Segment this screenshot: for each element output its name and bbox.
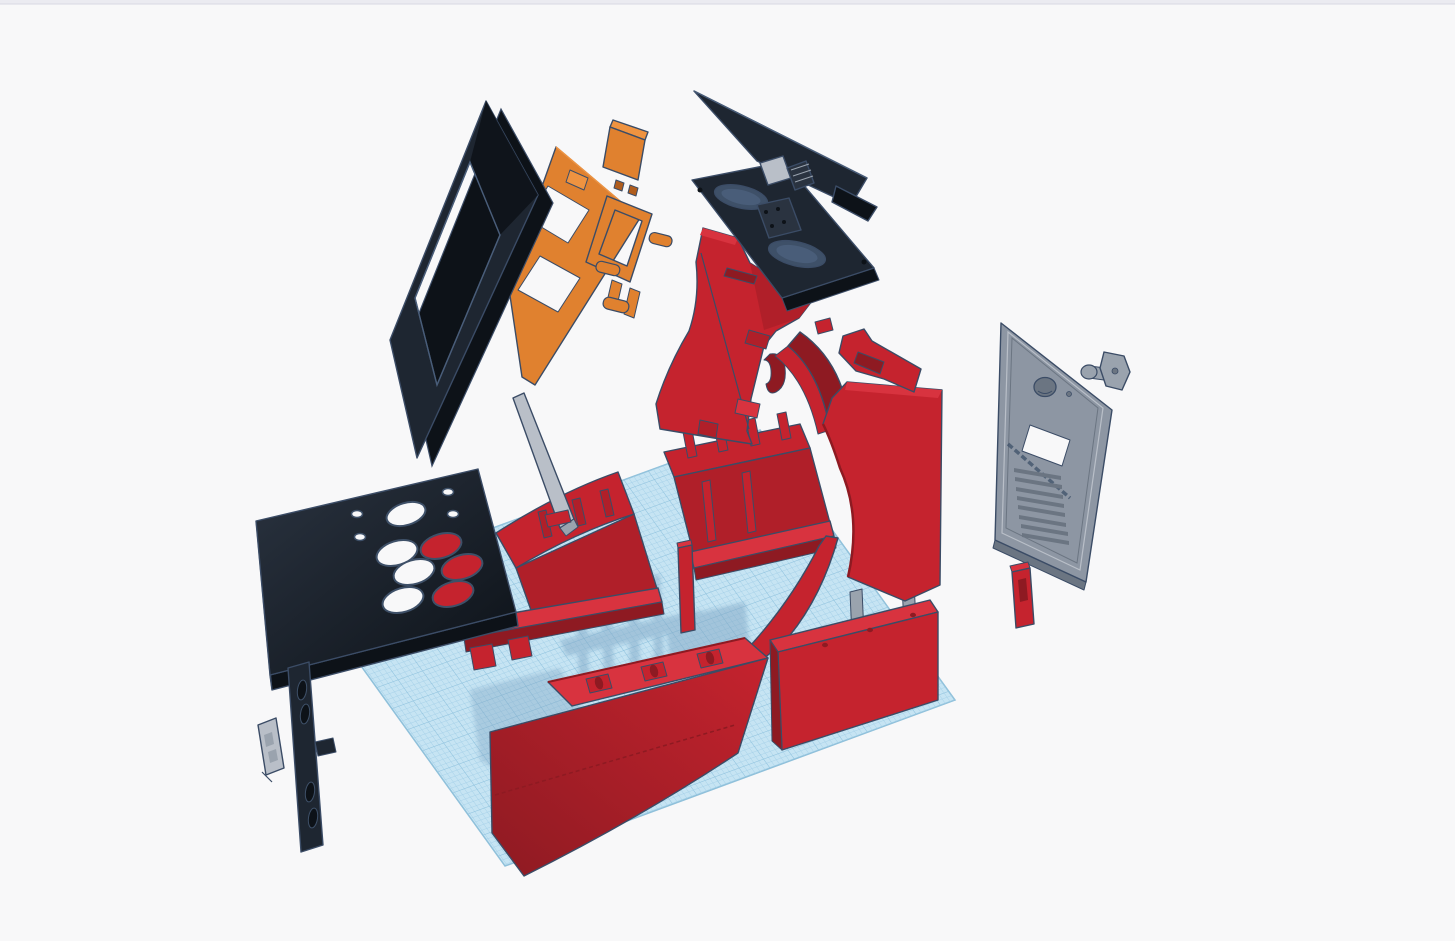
top-strip	[0, 0, 1455, 4]
viewport-canvas: Workplane grid Base box left Base box ri…	[0, 0, 1455, 941]
